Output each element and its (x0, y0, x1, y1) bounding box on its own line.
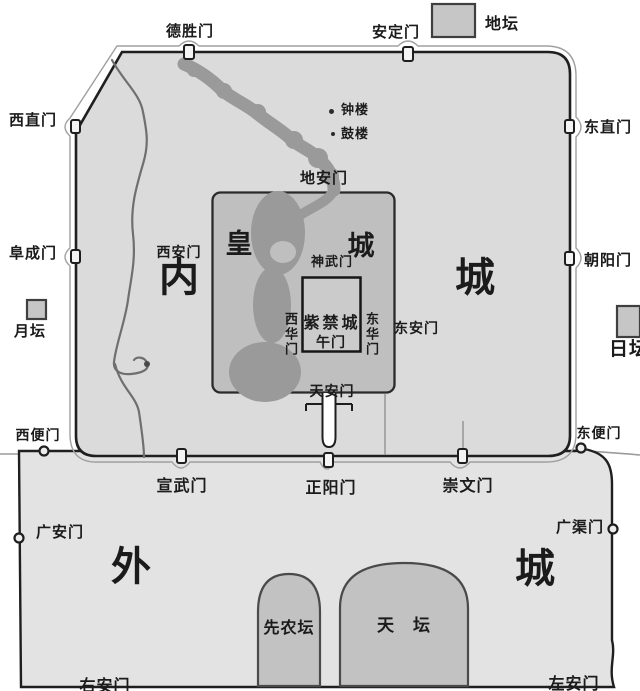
label-xizhimen: 西直门 (7, 112, 59, 129)
label-andingmen: 安定门 (368, 24, 424, 41)
label-chongwenmen: 崇文门 (436, 477, 500, 495)
label-dianmen: 地安门 (290, 170, 358, 187)
dongbianmen-gate (577, 444, 586, 453)
xuanwumen-gate (177, 449, 186, 463)
lake-island (270, 241, 296, 263)
label-shenwumen: 神武门 (306, 256, 358, 270)
zhengyangmen-gate (324, 453, 333, 467)
chaoyangmen-gate (565, 252, 574, 265)
ritan-altar (617, 306, 640, 337)
label-zhengyangmen: 正阳门 (300, 479, 362, 497)
label-gulou: 鼓楼 (341, 128, 381, 142)
label-donghuamen: 东华门 (364, 306, 377, 362)
ditan-altar (432, 4, 475, 37)
label-youanmen: 右安门 (74, 677, 136, 691)
label-donganmen: 东安门 (394, 322, 452, 337)
yuetan-altar (27, 300, 46, 319)
label-deshengmen: 德胜门 (162, 23, 218, 40)
label-xiannongtan: 先农坛 (260, 619, 318, 637)
label-zuoanmen: 左安门 (543, 675, 605, 691)
gulou-dot (331, 132, 335, 136)
chongwenmen-gate (458, 449, 467, 463)
andingmen-gate (403, 47, 413, 61)
label-tiantan: 天 坛 (372, 617, 436, 636)
label-dongbianmen: 东便门 (571, 427, 627, 442)
label-inner-city-cheng: 城 (452, 256, 498, 300)
xibianmen-gate (40, 447, 49, 456)
label-guangqumen: 广渠门 (551, 519, 609, 536)
label-chaoyangmen: 朝阳门 (584, 252, 640, 269)
dongzhimen-gate (565, 120, 574, 133)
label-wumen: 午门 (313, 336, 349, 351)
zhonglou-dot (329, 109, 334, 114)
label-inner-city-nei: 内 (156, 256, 202, 300)
label-xihuamen: 西华门 (283, 306, 296, 362)
label-outer-city-cheng: 城 (512, 547, 558, 591)
label-xibianmen: 西便门 (11, 429, 65, 444)
label-dongzhimen: 东直门 (584, 119, 640, 136)
label-xuanwumen: 宣武门 (151, 477, 213, 495)
guanganmen-gate (15, 534, 24, 543)
label-forbidden-city: 紫禁城 (301, 314, 363, 332)
corridor (323, 393, 336, 447)
river-node (144, 361, 150, 367)
guangqumen-gate (609, 525, 618, 534)
label-ritan: 日坛 (609, 339, 640, 360)
xizhimen-gate (71, 120, 80, 133)
label-fuchengmen: 阜成门 (7, 245, 59, 262)
label-zhonglou: 钟楼 (341, 104, 381, 118)
beijing-old-city-map: 德胜门 安定门 地坛 西直门 阜成门 东直门 朝阳门 钟楼 鼓楼 地安门 皇 城… (0, 0, 640, 691)
label-guanganmen: 广安门 (31, 524, 89, 541)
fuchengmen-gate (71, 250, 80, 263)
label-tiananmen: 天安门 (304, 385, 360, 400)
label-outer-city-wai: 外 (108, 545, 154, 589)
deshengmen-gate (184, 45, 194, 59)
label-ditan: 地坛 (479, 15, 525, 33)
label-yuetan: 月坛 (7, 323, 53, 340)
label-imperial-huang: 皇 (224, 230, 254, 260)
